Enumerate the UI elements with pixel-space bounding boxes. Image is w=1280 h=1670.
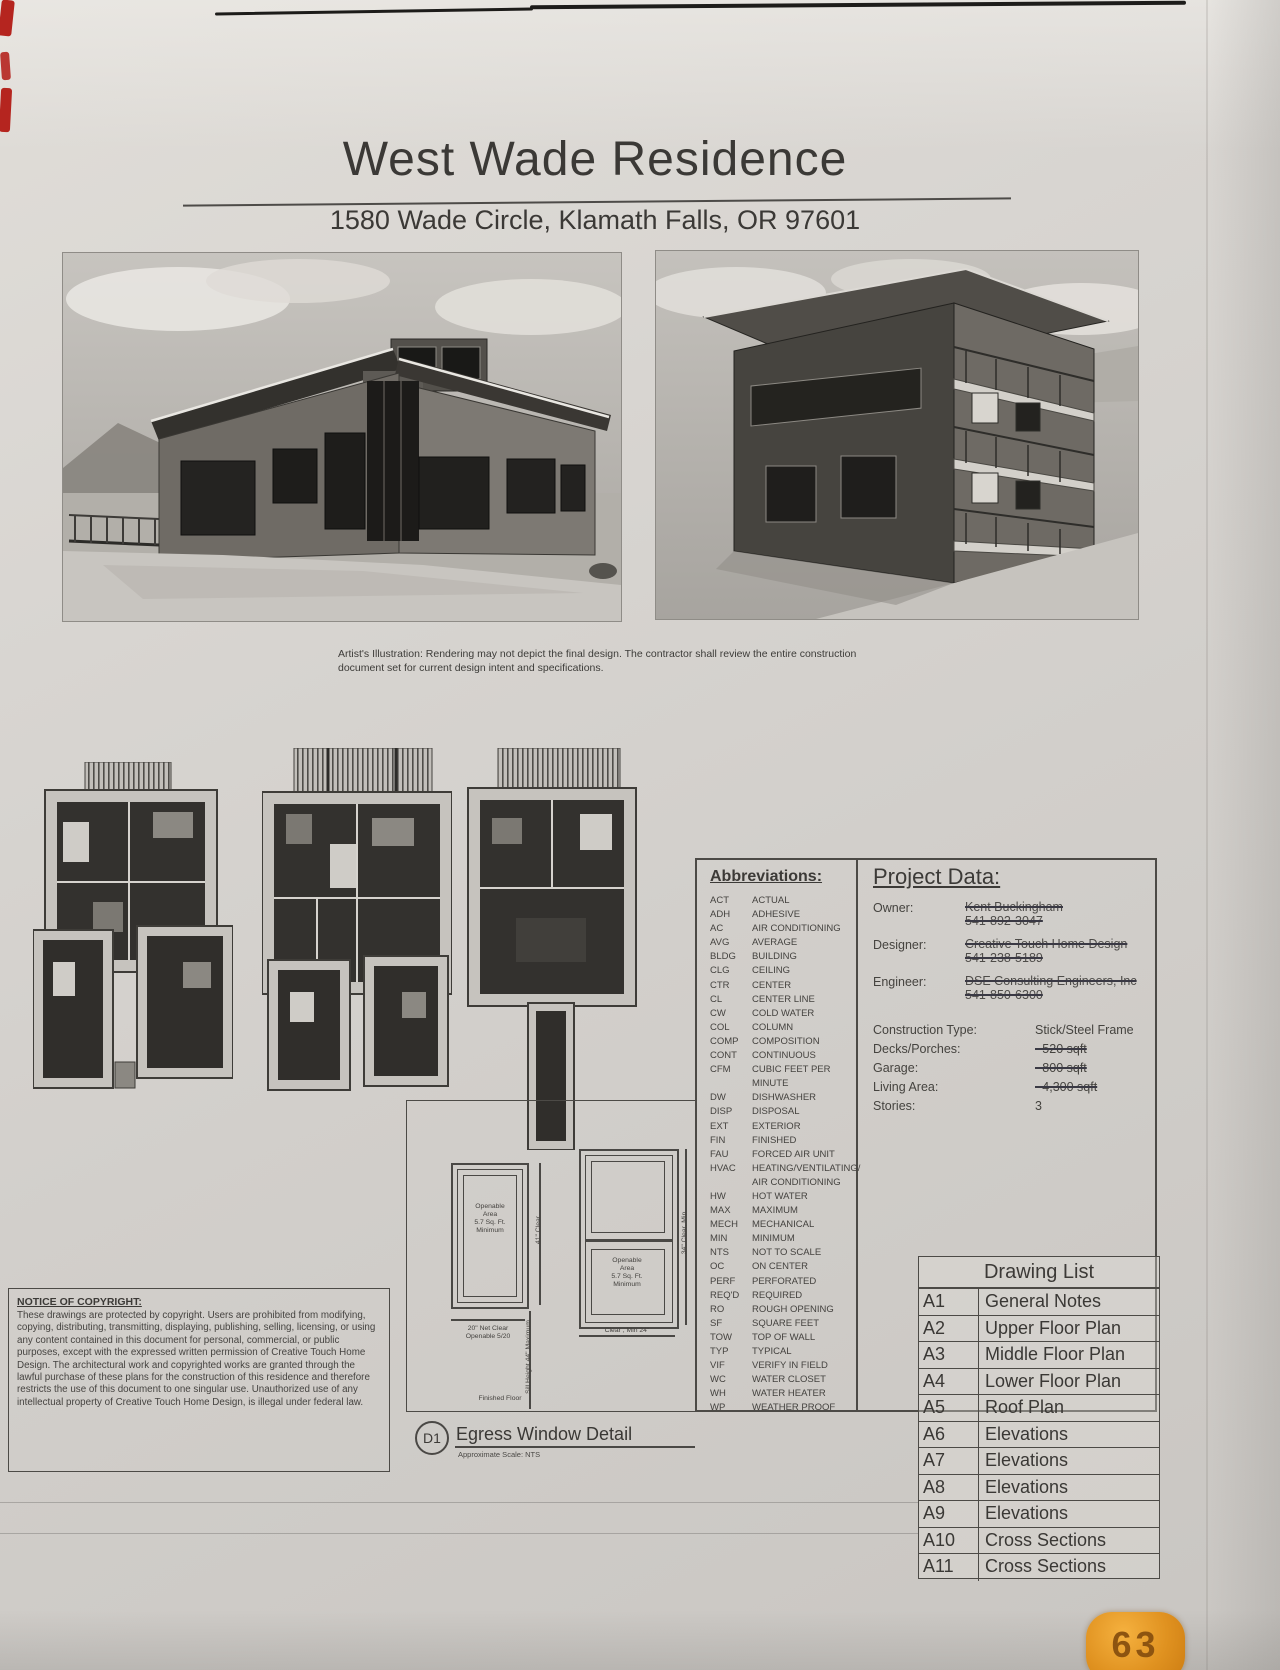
abbreviation-term: BUILDING xyxy=(752,950,797,964)
drawing-list-row: A2Upper Floor Plan xyxy=(919,1316,1159,1343)
abbreviation-key: BLDG xyxy=(710,950,752,964)
abbreviation-key: AVG xyxy=(710,936,752,950)
drawing-list-table: Drawing List A1General NotesA2Upper Floo… xyxy=(918,1256,1160,1579)
abbreviation-key: CFM xyxy=(710,1063,752,1091)
drawing-list-rows: A1General NotesA2Upper Floor PlanA3Middl… xyxy=(919,1289,1159,1581)
abbreviation-row: CONTCONTINUOUS xyxy=(710,1049,856,1063)
egress-left-height-dim: 41" Clear xyxy=(535,1208,543,1252)
red-pen-mark xyxy=(0,52,11,81)
abbreviation-key: COL xyxy=(710,1021,752,1035)
project-spec-row: Construction Type:Stick/Steel Frame xyxy=(873,1021,1155,1040)
sheet-number: A8 xyxy=(919,1475,979,1501)
abbreviation-row: CTRCENTER xyxy=(710,979,856,993)
paper-shading-right xyxy=(1210,0,1280,1670)
abbreviation-term: COMPOSITION xyxy=(752,1035,820,1049)
rendering-front-exterior xyxy=(62,252,622,622)
abbreviation-term: COLD WATER xyxy=(752,1007,814,1021)
sheet-name: Elevations xyxy=(979,1422,1068,1448)
abbreviation-term: DISHWASHER xyxy=(752,1091,816,1105)
drawing-list-title: Drawing List xyxy=(919,1257,1159,1289)
abbreviation-term: AIR CONDITIONING xyxy=(752,922,841,936)
abbreviation-term: ADHESIVE xyxy=(752,908,800,922)
project-contact-row: Designer:Creative Touch Home Design541-2… xyxy=(873,937,1155,965)
project-spec-value: ~520 sqft xyxy=(1035,1040,1087,1059)
abbreviation-row: ROROUGH OPENING xyxy=(710,1303,856,1317)
abbreviation-key: WC xyxy=(710,1373,752,1387)
sheet-number: A4 xyxy=(919,1369,979,1395)
sheet-name: Elevations xyxy=(979,1475,1068,1501)
page-title: West Wade Residence xyxy=(180,132,1010,187)
abbreviation-key: FIN xyxy=(710,1134,752,1148)
project-contact-label: Designer: xyxy=(873,937,965,965)
project-contact-value: DSE Consulting Engineers, Inc541-850-630… xyxy=(965,974,1137,1002)
project-spec-row: Decks/Porches:~520 sqft xyxy=(873,1040,1155,1059)
project-contact-row: Engineer:DSE Consulting Engineers, Inc54… xyxy=(873,974,1155,1002)
abbreviation-row: HVACHEATING/VENTILATING/ AIR CONDITIONIN… xyxy=(710,1162,856,1190)
drawing-list-row: A9Elevations xyxy=(919,1501,1159,1528)
abbreviation-key: TYP xyxy=(710,1345,752,1359)
abbreviation-row: DWDISHWASHER xyxy=(710,1091,856,1105)
abbreviation-row: NTSNOT TO SCALE xyxy=(710,1246,856,1260)
drawing-list-row: A11Cross Sections xyxy=(919,1554,1159,1581)
abbreviation-term: CENTER LINE xyxy=(752,993,815,1007)
project-spec-row: Garage:~800 sqft xyxy=(873,1059,1155,1078)
abbreviation-row: CFMCUBIC FEET PER MINUTE xyxy=(710,1063,856,1091)
abbreviation-term: MINIMUM xyxy=(752,1232,795,1246)
sheet-name: Elevations xyxy=(979,1501,1068,1527)
project-spec-label: Living Area: xyxy=(873,1078,1035,1097)
scan-artifact-line xyxy=(0,1533,918,1534)
sheet-number: A7 xyxy=(919,1448,979,1474)
abbreviation-term: EXTERIOR xyxy=(752,1120,801,1134)
abbreviation-term: MAXIMUM xyxy=(752,1204,798,1218)
sheet-number: A5 xyxy=(919,1395,979,1421)
abbreviation-row: MECHMECHANICAL xyxy=(710,1218,856,1232)
project-contact-value: Creative Touch Home Design541-238-5189 xyxy=(965,937,1127,965)
abbreviation-row: HWHOT WATER xyxy=(710,1190,856,1204)
abbreviation-key: MAX xyxy=(710,1204,752,1218)
sheet-number: A10 xyxy=(919,1528,979,1554)
abbreviation-term: WEATHER PROOF xyxy=(752,1401,835,1415)
project-spec-value: ~800 sqft xyxy=(1035,1059,1087,1078)
abbreviation-term: ROUGH OPENING xyxy=(752,1303,834,1317)
sheet-number: A2 xyxy=(919,1316,979,1342)
project-spec-label: Garage: xyxy=(873,1059,1035,1078)
abbreviation-key: OC xyxy=(710,1260,752,1274)
project-spec-value: 3 xyxy=(1035,1097,1042,1116)
abbreviation-row: COMPCOMPOSITION xyxy=(710,1035,856,1049)
sheet-number: A11 xyxy=(919,1554,979,1581)
abbreviation-key: WP xyxy=(710,1401,752,1415)
egress-right-window-label: Openable Area 5.7 Sq. Ft. Minimum xyxy=(601,1257,653,1289)
abbreviation-row: CWCOLD WATER xyxy=(710,1007,856,1021)
abbreviation-key: VIF xyxy=(710,1359,752,1373)
abbreviation-row: ADHADHESIVE xyxy=(710,908,856,922)
abbreviation-term: MECHANICAL xyxy=(752,1218,814,1232)
dimension-line xyxy=(579,1335,675,1337)
abbreviation-key: MIN xyxy=(710,1232,752,1246)
drawing-list-row: A8Elevations xyxy=(919,1475,1159,1502)
abbreviation-row: PERFPERFORATED xyxy=(710,1275,856,1289)
abbreviation-key: MECH xyxy=(710,1218,752,1232)
abbreviation-key: CL xyxy=(710,993,752,1007)
abbreviation-term: FINISHED xyxy=(752,1134,796,1148)
abbreviation-key: ACT xyxy=(710,894,752,908)
project-data-specs: Construction Type:Stick/Steel FrameDecks… xyxy=(856,1021,1155,1116)
abbreviation-row: ACTACTUAL xyxy=(710,894,856,908)
floor-plan-thumbnail-3 xyxy=(462,748,642,1150)
abbreviation-key: EXT xyxy=(710,1120,752,1134)
drawing-list-row: A6Elevations xyxy=(919,1422,1159,1449)
abbreviation-key: AC xyxy=(710,922,752,936)
abbreviation-term: PERFORATED xyxy=(752,1275,816,1289)
sheet-number: A1 xyxy=(919,1289,979,1315)
redacted-text: DSE Consulting Engineers, Inc xyxy=(965,974,1137,988)
project-spec-row: Stories:3 xyxy=(873,1097,1155,1116)
abbreviation-key: TOW xyxy=(710,1331,752,1345)
abbreviation-term: CONTINUOUS xyxy=(752,1049,816,1063)
abbreviation-term: SQUARE FEET xyxy=(752,1317,819,1331)
abbreviation-row: TYPTYPICAL xyxy=(710,1345,856,1359)
abbreviation-term: CUBIC FEET PER MINUTE xyxy=(752,1063,856,1091)
abbreviation-key: REQ'D xyxy=(710,1289,752,1303)
abbreviation-key: PERF xyxy=(710,1275,752,1289)
egress-double-hung-window-drawing: Openable Area 5.7 Sq. Ft. Minimum xyxy=(579,1149,679,1329)
paper-crease xyxy=(1206,0,1208,1670)
sheet-number: A9 xyxy=(919,1501,979,1527)
project-contact-label: Owner: xyxy=(873,900,965,928)
abbreviation-key: CW xyxy=(710,1007,752,1021)
abbreviation-term: TYPICAL xyxy=(752,1345,792,1359)
abbreviation-row: COLCOLUMN xyxy=(710,1021,856,1035)
sheet-number: A6 xyxy=(919,1422,979,1448)
abbreviation-term: NOT TO SCALE xyxy=(752,1246,821,1260)
sheet-name: General Notes xyxy=(979,1289,1101,1315)
copyright-body: These drawings are protected by copyrigh… xyxy=(17,1310,380,1409)
scanned-cover-sheet: West Wade Residence 1580 Wade Circle, Kl… xyxy=(0,0,1280,1670)
project-contact-row: Owner:Kent Buckingham541-892-3047 xyxy=(873,900,1155,928)
drawing-list-row: A1General Notes xyxy=(919,1289,1159,1316)
detail-bubble-id: D1 xyxy=(423,1430,441,1446)
project-spec-value: Stick/Steel Frame xyxy=(1035,1021,1134,1040)
abbreviation-key: HVAC xyxy=(710,1162,752,1190)
abbreviation-term: HEATING/VENTILATING/ AIR CONDITIONING xyxy=(752,1162,860,1190)
sheet-name: Cross Sections xyxy=(979,1554,1106,1581)
project-contact-value: Kent Buckingham541-892-3047 xyxy=(965,900,1063,928)
copyright-notice-box: NOTICE OF COPYRIGHT: These drawings are … xyxy=(8,1288,390,1472)
sheet-name: Upper Floor Plan xyxy=(979,1316,1121,1342)
abbreviation-term: HOT WATER xyxy=(752,1190,808,1204)
rendering-caption: Artist's Illustration: Rendering may not… xyxy=(338,648,858,675)
abbreviation-key: CTR xyxy=(710,979,752,993)
abbreviation-row: SFSQUARE FEET xyxy=(710,1317,856,1331)
abbreviation-row: REQ'DREQUIRED xyxy=(710,1289,856,1303)
abbreviation-row: WCWATER CLOSET xyxy=(710,1373,856,1387)
abbreviation-row: FINFINISHED xyxy=(710,1134,856,1148)
detail-bubble: D1 xyxy=(415,1421,449,1455)
project-spec-row: Living Area:~4,300 sqft xyxy=(873,1078,1155,1097)
floor-plan-thumbnail-2 xyxy=(262,748,452,1093)
project-spec-label: Decks/Porches: xyxy=(873,1040,1035,1059)
abbreviation-key: SF xyxy=(710,1317,752,1331)
rendering-rear-exterior xyxy=(655,250,1139,620)
egress-sill-dim: Sill Height 44" Maximum xyxy=(525,1307,533,1407)
abbreviations-title: Abbreviations: xyxy=(710,868,856,886)
sheet-name: Cross Sections xyxy=(979,1528,1106,1554)
abbreviation-row: WPWEATHER PROOF xyxy=(710,1401,856,1415)
project-spec-label: Construction Type: xyxy=(873,1021,1035,1040)
sheet-name: Roof Plan xyxy=(979,1395,1064,1421)
abbreviation-term: WATER HEATER xyxy=(752,1387,826,1401)
abbreviations-list: ACTACTUALADHADHESIVEACAIR CONDITIONINGAV… xyxy=(697,894,856,1415)
egress-right-height-dim: 34" Clear, Min xyxy=(681,1203,689,1263)
abbreviation-key: NTS xyxy=(710,1246,752,1260)
egress-floor-label: Finished Floor xyxy=(465,1395,535,1403)
sheet-name: Middle Floor Plan xyxy=(979,1342,1125,1368)
egress-detail-title: Egress Window Detail xyxy=(456,1424,632,1445)
drawing-list-row: A5Roof Plan xyxy=(919,1395,1159,1422)
project-data-contacts: Owner:Kent Buckingham541-892-3047Designe… xyxy=(856,900,1155,1002)
abbreviation-term: AVERAGE xyxy=(752,936,797,950)
project-address: 1580 Wade Circle, Klamath Falls, OR 9760… xyxy=(180,205,1010,236)
abbreviation-row: VIFVERIFY IN FIELD xyxy=(710,1359,856,1373)
abbreviation-term: CENTER xyxy=(752,979,791,993)
abbreviation-term: FORCED AIR UNIT xyxy=(752,1148,835,1162)
project-spec-value: ~4,300 sqft xyxy=(1035,1078,1097,1097)
abbreviation-row: MAXMAXIMUM xyxy=(710,1204,856,1218)
sheet-name: Elevations xyxy=(979,1448,1068,1474)
project-data-title: Project Data: xyxy=(873,864,1155,890)
abbreviation-key: CLG xyxy=(710,964,752,978)
abbreviation-row: BLDGBUILDING xyxy=(710,950,856,964)
detail-title-underline xyxy=(455,1446,695,1448)
abbreviation-row: WHWATER HEATER xyxy=(710,1387,856,1401)
abbreviation-key: HW xyxy=(710,1190,752,1204)
sheet-name: Lower Floor Plan xyxy=(979,1369,1121,1395)
drawing-list-row: A3Middle Floor Plan xyxy=(919,1342,1159,1369)
redacted-text: 541-238-5189 xyxy=(965,951,1127,965)
abbreviation-term: WATER CLOSET xyxy=(752,1373,826,1387)
abbreviation-row: TOWTOP OF WALL xyxy=(710,1331,856,1345)
project-spec-label: Stories: xyxy=(873,1097,1035,1116)
egress-right-width-dim: Clear , Min 24" xyxy=(583,1327,671,1335)
abbreviation-key: RO xyxy=(710,1303,752,1317)
drawing-list-row: A7Elevations xyxy=(919,1448,1159,1475)
page-corner-badge-text: 63 xyxy=(1111,1624,1159,1666)
abbreviation-row: EXTEXTERIOR xyxy=(710,1120,856,1134)
abbreviation-key: COMP xyxy=(710,1035,752,1049)
abbreviation-term: CEILING xyxy=(752,964,790,978)
drawing-list-row: A4Lower Floor Plan xyxy=(919,1369,1159,1396)
abbreviation-key: CONT xyxy=(710,1049,752,1063)
abbreviation-term: DISPOSAL xyxy=(752,1105,800,1119)
copyright-heading: NOTICE OF COPYRIGHT: xyxy=(17,1296,389,1308)
abbreviation-row: FAUFORCED AIR UNIT xyxy=(710,1148,856,1162)
drawing-list-row: A10Cross Sections xyxy=(919,1528,1159,1555)
abbreviation-key: ADH xyxy=(710,908,752,922)
paper-shading-top xyxy=(0,0,1280,150)
egress-left-window-label: Openable Area 5.7 Sq. Ft. Minimum xyxy=(465,1203,515,1235)
redacted-text: Creative Touch Home Design xyxy=(965,937,1127,951)
abbreviation-row: AVGAVERAGE xyxy=(710,936,856,950)
floor-plan-thumbnail-1 xyxy=(33,762,233,1092)
abbreviation-term: REQUIRED xyxy=(752,1289,802,1303)
abbreviation-term: COLUMN xyxy=(752,1021,793,1035)
page-corner-badge[interactable]: 63 xyxy=(1086,1612,1185,1670)
abbreviation-row: DISPDISPOSAL xyxy=(710,1105,856,1119)
egress-detail-box: Openable Area 5.7 Sq. Ft. Minimum 41" Cl… xyxy=(406,1100,696,1412)
dimension-line xyxy=(451,1319,525,1321)
project-contact-label: Engineer: xyxy=(873,974,965,1002)
abbreviation-row: CLCENTER LINE xyxy=(710,993,856,1007)
abbreviation-row: ACAIR CONDITIONING xyxy=(710,922,856,936)
abbreviation-key: WH xyxy=(710,1387,752,1401)
redacted-text: 541-892-3047 xyxy=(965,914,1063,928)
abbreviation-row: CLGCEILING xyxy=(710,964,856,978)
scan-artifact-line xyxy=(0,1502,918,1503)
abbreviations-box: Abbreviations: ACTACTUALADHADHESIVEACAIR… xyxy=(695,858,858,1412)
redacted-text: 541-850-6300 xyxy=(965,988,1137,1002)
abbreviation-row: MINMINIMUM xyxy=(710,1232,856,1246)
abbreviation-term: ACTUAL xyxy=(752,894,789,908)
abbreviation-term: TOP OF WALL xyxy=(752,1331,815,1345)
redacted-text: Kent Buckingham xyxy=(965,900,1063,914)
abbreviation-key: DISP xyxy=(710,1105,752,1119)
abbreviation-row: OCON CENTER xyxy=(710,1260,856,1274)
abbreviation-key: DW xyxy=(710,1091,752,1105)
abbreviation-key: FAU xyxy=(710,1148,752,1162)
sheet-number: A3 xyxy=(919,1342,979,1368)
egress-casement-window-drawing: Openable Area 5.7 Sq. Ft. Minimum xyxy=(451,1163,529,1309)
egress-detail-scale: Approximate Scale: NTS xyxy=(458,1450,540,1459)
abbreviation-term: VERIFY IN FIELD xyxy=(752,1359,828,1373)
abbreviation-term: ON CENTER xyxy=(752,1260,808,1274)
